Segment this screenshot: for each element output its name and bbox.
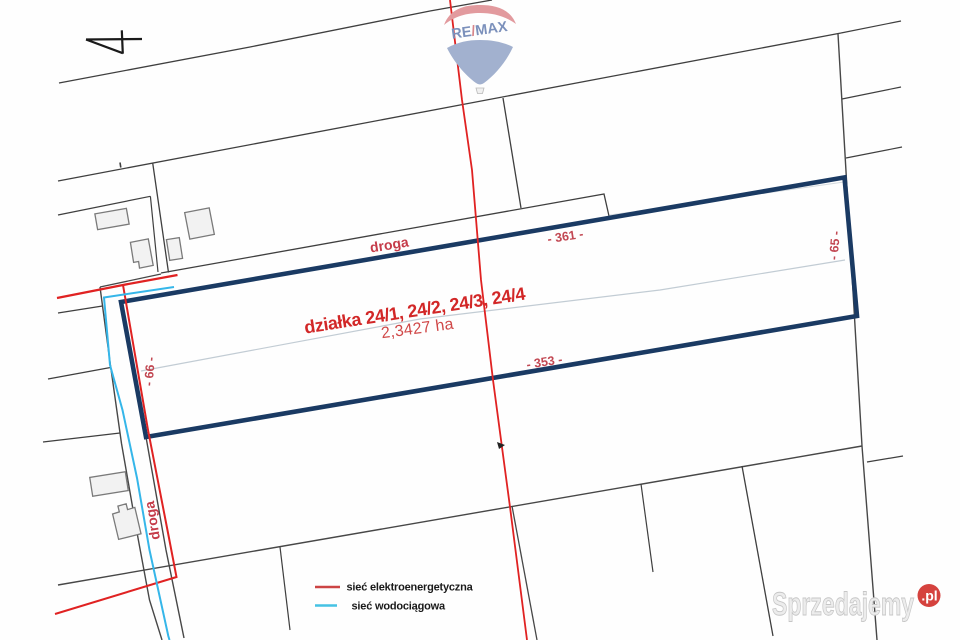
svg-text:sieć wodociągowa: sieć wodociągowa: [352, 601, 446, 613]
svg-text:Sprzedajemy: Sprzedajemy: [772, 586, 915, 622]
svg-text:sieć elektroenergetyczna: sieć elektroenergetyczna: [347, 582, 474, 594]
svg-text:- 65 -: - 65 -: [827, 230, 843, 260]
svg-text:.pl: .pl: [921, 588, 937, 604]
svg-text:- 66 -: - 66 -: [142, 356, 158, 386]
